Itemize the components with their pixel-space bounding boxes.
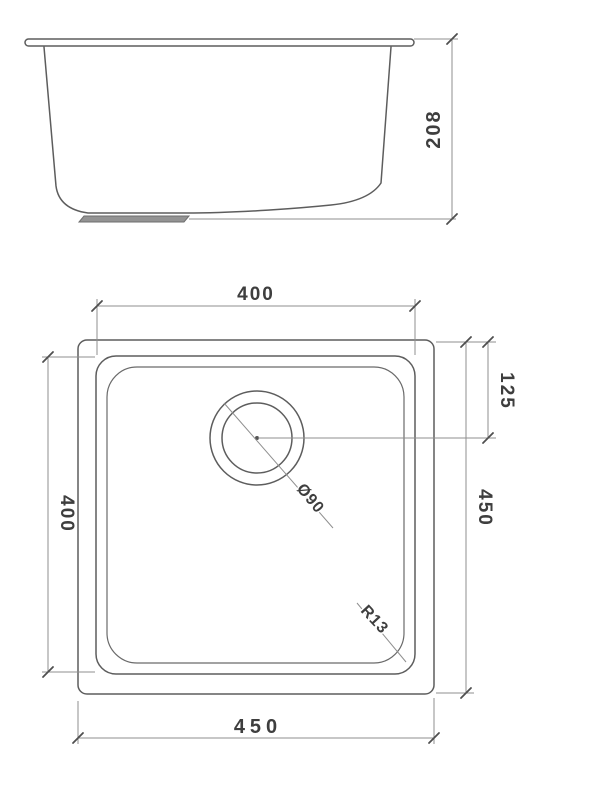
corner-radius-label: R13 [357,602,392,637]
dimension-label-height: 208 [423,109,445,148]
plan-view: Ø90 R13 400 400 [42,284,517,744]
dimension-drain-offset-125: 125 [258,337,517,443]
dimension-bowl-width-400: 400 [92,284,420,355]
side-elevation-view: 208 [25,34,458,224]
dimension-label-overall-depth: 450 [474,489,495,527]
drain-diameter-label: Ø90 [293,481,327,517]
dimension-label-bowl-width: 400 [237,284,275,305]
drain-strainer-profile [79,216,189,222]
dimension-label-overall-width: 450 [234,716,282,738]
dimension-height-208: 208 [189,34,458,224]
dimension-overall-depth-450: 450 [436,337,496,698]
sink-outer-edge [78,340,434,694]
dimension-overall-width-450: 450 [73,698,439,744]
bowl-bottom-edge [107,367,404,663]
drain: Ø90 [210,391,333,528]
sink-technical-drawing: 208 Ø90 R13 400 [0,0,605,800]
dimension-bowl-depth-400: 400 [42,352,95,677]
corner-radius-callout: R13 [357,602,406,662]
drawing-sheet: 208 Ø90 R13 400 [0,0,605,800]
sink-bowl-profile [44,47,391,213]
sink-rim-profile [25,39,414,46]
dimension-label-drain-offset: 125 [496,372,517,410]
dimension-label-bowl-depth: 400 [56,495,77,533]
